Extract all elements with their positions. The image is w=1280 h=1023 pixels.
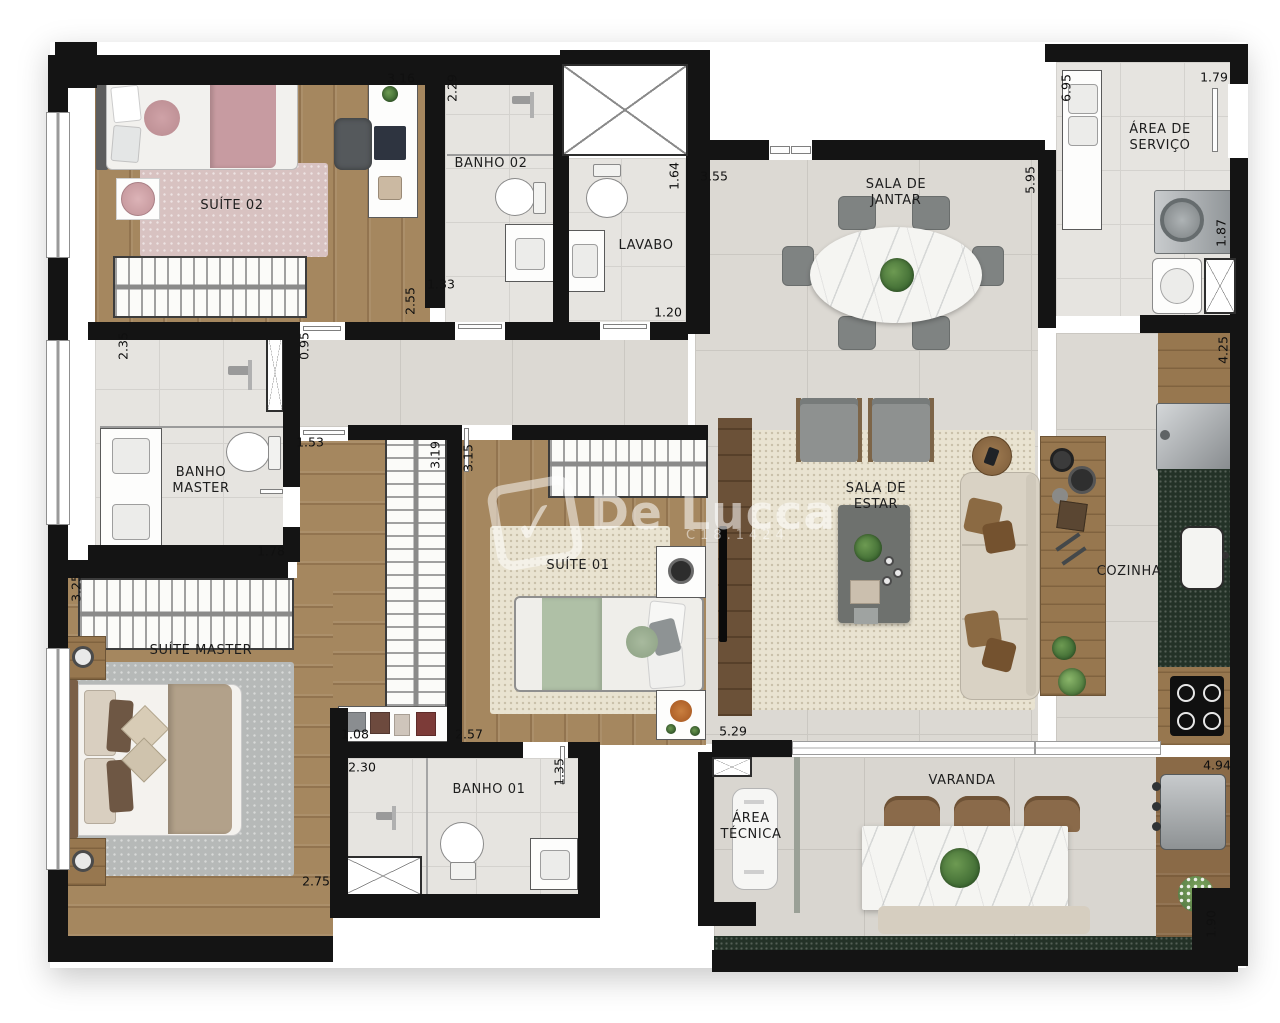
water-heater-vent-2 [744,870,764,874]
dim-cozinha-side: 4.25 [1216,336,1231,364]
entrance-door-leaf-2 [791,146,811,154]
wall-banho01-top-1 [333,742,523,758]
coffee-table-book [854,608,878,624]
dim-banho-master-side: 2.35 [116,332,131,360]
dim-estar-base: 5.29 [719,724,747,739]
watermark-code: C18.1424 [686,528,789,543]
wall-varanda-bottom [712,950,1238,972]
dining-chair-3 [782,246,814,286]
dim-servico-side: 6.95 [1059,74,1074,102]
lamp-master-2 [72,850,94,872]
toilet-banho02 [495,178,535,216]
sink-banho-master-1 [112,438,150,474]
sink-banho01 [540,850,570,880]
dim-suite-master-side: 3.25 [69,574,84,602]
wall-void-left [578,742,600,918]
door-leaf-banho-master [260,489,283,494]
bed-master-blanket [168,684,232,834]
laundry-sink-2 [1068,116,1098,146]
room-label-sala-jantar: SALA DE JANTAR [866,177,926,210]
island-plant-2 [1058,668,1086,696]
kitchen-faucet [1222,552,1229,559]
wall-servico-cozinha [1140,315,1232,333]
wall-hall-top-1 [345,322,455,340]
dining-table-plant [880,258,914,292]
dim-armario-base: 1.08 [341,727,369,742]
bed-suite01-round-pillow [626,626,658,658]
varanda-table-plant [940,848,980,888]
dim-varanda-side: 1.90 [1204,910,1219,938]
sliding-door-cozinha [1035,741,1161,755]
water-heater-vent-1 [744,800,764,804]
dim-banho01-side: 1.35 [552,758,567,786]
kitchen-sink [1180,526,1224,590]
dim-banho02-side: 2.29 [445,74,460,102]
entrance-door-leaf-1 [770,146,790,154]
shower-glass-banho01 [426,758,428,896]
shelf-item-4 [416,712,436,736]
island-plate-2 [1068,466,1096,494]
varanda-bench [878,906,1090,934]
bed-suite02-pillow-1 [110,85,142,124]
bed-suite02-pillow-2 [110,125,141,163]
coffee-table-plant [854,534,882,562]
dim-hall-door: 0.95 [297,332,312,360]
wall-hall-top-3 [650,322,688,340]
grill-knob-1 [1152,782,1161,791]
washing-machine-door [1160,198,1204,242]
watermark-check-icon: ✓ [507,488,563,559]
sink-lavabo [572,244,598,278]
wall-entry-right [812,140,1045,160]
wall-banho01-top-2 [568,742,600,758]
wall-top-suites [48,55,560,85]
coffee-table-cup-2 [893,568,903,578]
coffee-table-tray [850,580,880,604]
dim-suite02-side: 2.55 [403,287,418,315]
wall-estar-bottom [712,740,792,757]
room-label-varanda: VARANDA [929,773,996,789]
wall-banho01-bottom [333,894,600,918]
shaft-estar [712,757,752,777]
wall-tecnica-bottom [698,902,756,926]
decor-suite01 [668,558,694,584]
shower-head-banho-master [228,366,250,375]
island-board [1056,500,1088,532]
toilet-tank-banho02 [533,182,546,214]
dining-chair-5 [838,316,876,350]
wall-suite-master-top [48,560,288,578]
room-label-banho01: BANHO 01 [452,782,525,798]
toilet-banho01 [440,822,484,866]
window-suite-master [46,648,70,870]
flowers-suite01 [670,700,692,722]
dim-servico-right: 1.87 [1214,219,1229,247]
dim-suite01-base: 2.57 [455,727,483,742]
toilet-banho-master [226,432,270,472]
pouf-suite02 [121,182,155,216]
toilet-tank-banho01 [450,862,476,880]
cooktop-burner-1 [1177,684,1195,702]
coffee-table-cup-3 [882,576,892,586]
room-label-banho-master: BANHO MASTER [172,465,229,498]
door-suite01 [462,425,512,440]
window-suite02 [46,112,70,258]
dim-jantar-top: 3.55 [700,169,728,184]
grill [1160,774,1226,850]
window-banho-master [46,340,70,525]
floor-hall [288,330,688,430]
plant-suite02 [382,86,398,102]
door-banho-master [283,487,300,527]
door-leaf-banho02 [458,324,502,329]
wall-entry-left [695,140,769,160]
shower-stem-banho01 [392,806,396,830]
dim-suite-master-base: 2.75 [302,874,330,889]
armchair-1 [800,398,858,462]
closet-suite-master [78,578,294,650]
door-leaf-lavabo [603,324,647,329]
floor-plan: ✓ De Lucca C18.1424 SUÍTE 02 BANHO 02 LA… [0,0,1280,1023]
wall-tecnica-right [794,757,800,913]
wall-right-top [1230,44,1248,84]
dim-lavabo-door: 1.20 [654,305,682,320]
coffee-table [838,505,910,623]
dim-suite01-side: 3.15 [461,444,476,472]
room-label-area-servico: ÁREA DE SERVIÇO [1129,122,1191,155]
wall-suite-master-bottom [48,936,333,962]
grill-knob-2 [1152,802,1161,811]
cooktop-burner-3 [1177,712,1195,730]
room-label-suite01: SUÍTE 01 [546,558,609,574]
door-leaf-servico [1212,88,1218,152]
sofa-pillow-2 [982,520,1017,555]
cooktop-burner-4 [1203,712,1221,730]
island-plant-1 [1052,636,1076,660]
toilet-tank-lavabo [593,164,621,177]
coffee-table-cup-1 [884,556,894,566]
dim-armario-side: 3.19 [428,441,443,469]
shower-head-banho02 [512,96,532,104]
shaft-top [562,64,688,156]
room-label-cozinha: COZINHA [1097,564,1162,580]
island-plate-1 [1050,448,1074,472]
desk-stool-suite02 [378,176,402,200]
desk-chair-suite02 [334,118,372,170]
wall-suite01-top-2 [512,425,708,440]
dim-servico-top: 1.79 [1200,70,1228,85]
shower-box-banho01 [344,856,422,896]
closet-suite02 [113,256,307,318]
shaft-servico [1204,258,1236,314]
shower-stem-banho02 [530,92,534,118]
wall-hall-top-2 [505,322,600,340]
sink-banho-master-2 [112,504,150,540]
laptop-suite02 [374,126,406,160]
refrigerator-handle [1160,430,1170,440]
plant-suite01-2 [690,726,700,736]
dim-banho01-top: 2.30 [348,760,376,775]
room-label-lavabo: LAVABO [618,238,673,254]
door-leaf-hall [303,326,341,331]
room-label-banho02: BANHO 02 [454,156,527,172]
laundry-tank-basin [1160,268,1194,304]
armchair-2 [872,398,930,462]
plant-suite01-1 [666,724,676,734]
shelf-item-2 [370,712,390,734]
toilet-lavabo [586,178,628,218]
shelf-item-3 [394,714,410,736]
room-label-sala-estar: SALA DE ESTAR [846,481,906,514]
bed-suite02-blanket [210,80,276,168]
cooktop-burner-2 [1203,684,1221,702]
grill-knob-3 [1152,822,1161,831]
wall-suite01-left [447,440,462,745]
wall-lavabo-right [686,50,710,334]
dim-corredor-door: 1.53 [296,435,324,450]
tv [719,526,727,642]
room-label-area-tecnica: ÁREA TÉCNICA [721,811,782,844]
shower-box-banho-master [266,332,284,412]
door-servico [1228,84,1248,158]
dim-banho02-door: 1.33 [427,277,455,292]
room-label-suite02: SUÍTE 02 [200,198,263,214]
bed-suite02-round-pillow [144,100,180,136]
wall-suite-master-banho01 [330,742,348,918]
dim-jantar-side: 5.95 [1023,166,1038,194]
corridor-wardrobe [385,430,447,708]
bed-suite01-blanket [542,598,602,690]
dim-varanda-top: 4.94 [1203,758,1231,773]
wall-jantar-servico [1038,150,1056,328]
sofa-backrest [1026,474,1036,696]
toilet-tank-banho-master [268,436,281,470]
sink-banho02 [515,238,545,270]
lamp-master-1 [72,646,94,668]
wall-top-servico [1045,44,1248,62]
wall-suite01-top-1 [348,425,462,440]
varanda-granite-border [714,936,1236,950]
sliding-door-varanda [792,741,1035,755]
dim-lavabo-side: 1.64 [667,162,682,190]
room-label-suite-master: SUÍTE MASTER [150,643,253,659]
wall-suite02-banho02 [425,55,445,308]
dim-suite02-top: 3.16 [387,71,415,86]
shower-stem-banho-master [248,360,252,390]
dim-banho-master-door: 1.78 [257,544,285,559]
